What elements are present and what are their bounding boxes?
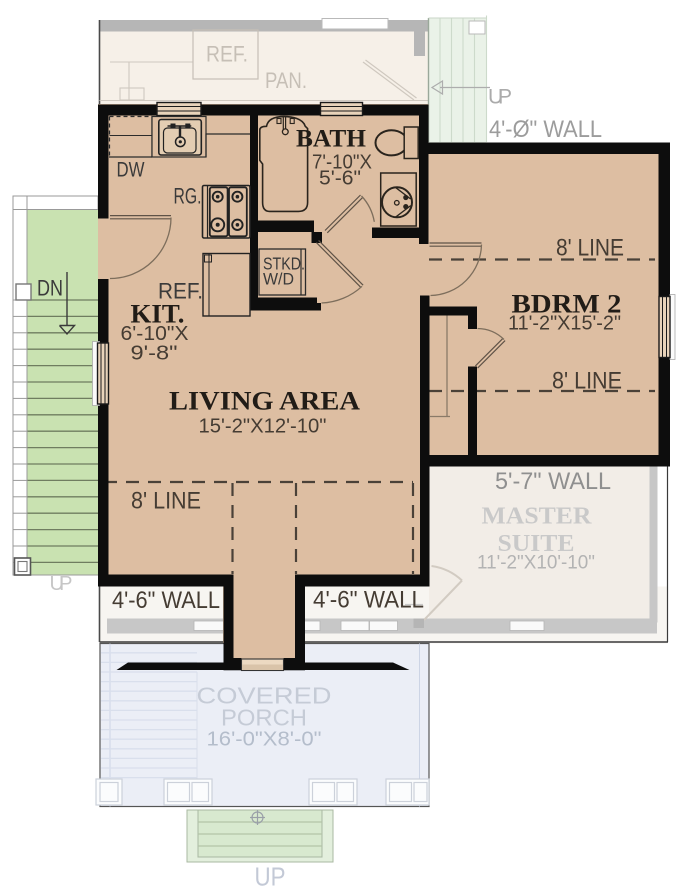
svg-text:16'-0"X8'-0": 16'-0"X8'-0" xyxy=(207,729,322,751)
svg-text:PORCH: PORCH xyxy=(221,705,307,731)
svg-text:11'-2"X15'-2": 11'-2"X15'-2" xyxy=(508,313,621,335)
svg-text:LIVING AREA: LIVING AREA xyxy=(169,387,360,416)
svg-text:5'-7" WALL: 5'-7" WALL xyxy=(495,468,611,495)
svg-text:15'-2"X12'-10": 15'-2"X12'-10" xyxy=(199,416,327,438)
svg-text:REF.: REF. xyxy=(206,42,248,67)
svg-text:8' LINE: 8' LINE xyxy=(131,488,201,515)
svg-text:UP: UP xyxy=(488,86,512,109)
svg-text:8' LINE: 8' LINE xyxy=(556,235,624,262)
svg-text:UP: UP xyxy=(50,573,73,595)
svg-text:MASTER: MASTER xyxy=(482,504,593,530)
svg-text:DN: DN xyxy=(37,276,63,301)
svg-text:8' LINE: 8' LINE xyxy=(552,368,622,395)
svg-text:UP: UP xyxy=(255,862,286,892)
svg-text:4'-6" WALL: 4'-6" WALL xyxy=(313,587,424,614)
svg-text:4'-6" WALL: 4'-6" WALL xyxy=(112,587,220,614)
svg-text:W/D: W/D xyxy=(263,270,294,289)
svg-text:BATH: BATH xyxy=(296,126,367,153)
svg-text:5'-6": 5'-6" xyxy=(319,168,361,190)
svg-text:RG.: RG. xyxy=(174,184,202,209)
svg-text:4'-Ø" WALL: 4'-Ø" WALL xyxy=(489,116,602,143)
svg-text:9'-8": 9'-8" xyxy=(131,343,178,365)
svg-text:DW: DW xyxy=(117,159,145,182)
svg-text:11'-2"X10'-10": 11'-2"X10'-10" xyxy=(477,552,595,574)
svg-text:PAN.: PAN. xyxy=(265,68,307,93)
